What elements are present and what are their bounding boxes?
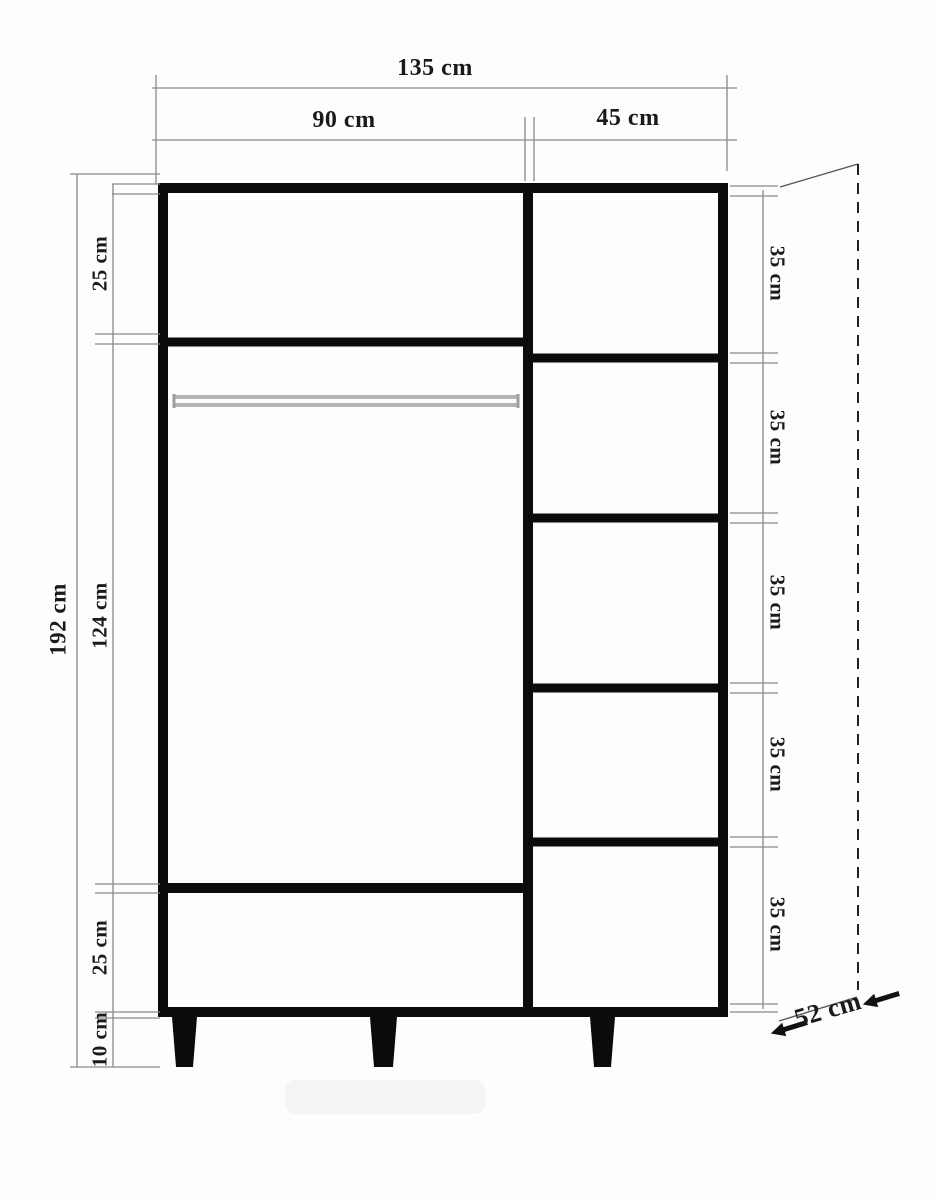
dim-label-hanging-space-height: 124 cm (90, 556, 111, 676)
dim-label-legs-height: 10 cm (90, 980, 111, 1100)
wardrobe-dimension-diagram: 135 cm 90 cm 45 cm 192 cm 25 cm 124 cm 2… (0, 0, 934, 1200)
dim-label-total-width: 135 cm (360, 56, 510, 80)
dim-label-shelf-height-2: 35 cm (767, 378, 788, 498)
wardrobe-legs (172, 1017, 615, 1067)
watermark-smudge (285, 1080, 485, 1114)
dim-label-shelf-height-5: 35 cm (767, 865, 788, 985)
dim-label-shelf-height-3: 35 cm (767, 543, 788, 663)
leg-left (172, 1017, 197, 1067)
dim-label-top-shelf-height: 25 cm (90, 204, 111, 324)
dim-label-total-height: 192 cm (47, 545, 70, 695)
wardrobe-body (163, 188, 723, 1012)
hanging-rod (173, 394, 519, 408)
left-height-dimensions (70, 174, 160, 1067)
dim-label-right-section-width: 45 cm (553, 106, 703, 130)
dim-label-shelf-height-4: 35 cm (767, 705, 788, 825)
dim-label-shelf-height-1: 35 cm (767, 214, 788, 334)
perspective-top-edge (780, 164, 858, 187)
leg-right (590, 1017, 615, 1067)
leg-middle (370, 1017, 397, 1067)
dim-label-left-section-width: 90 cm (269, 108, 419, 132)
